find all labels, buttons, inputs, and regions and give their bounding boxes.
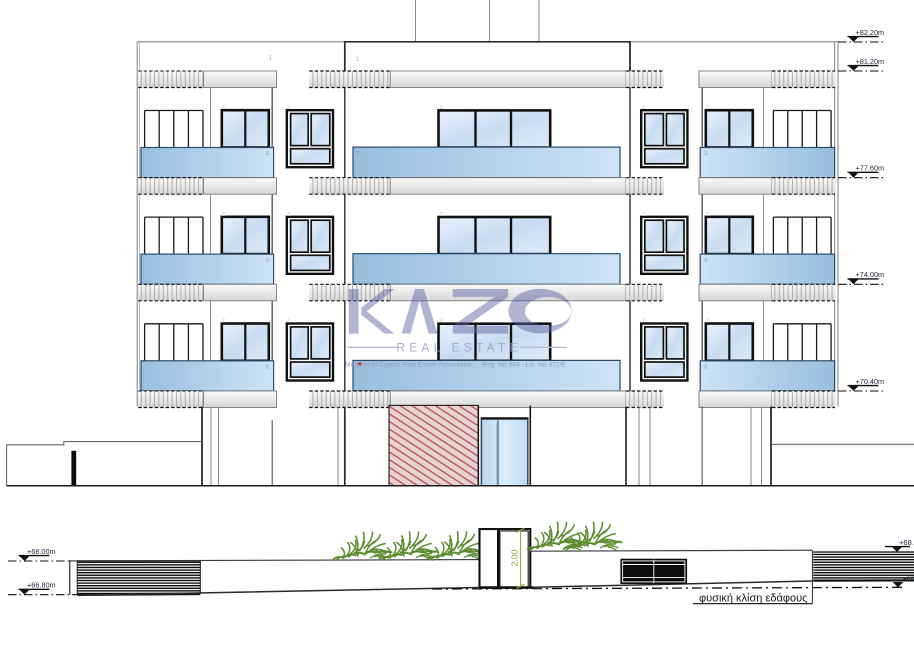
svg-text:2.: 2. — [440, 212, 444, 218]
svg-text:2.: 2. — [642, 319, 646, 325]
svg-text:2.: 2. — [222, 105, 226, 111]
svg-text:3.: 3. — [704, 364, 709, 370]
svg-text:+68.00m: +68.00m — [27, 547, 56, 556]
svg-text:3.: 3. — [704, 151, 709, 157]
svg-text:Member of Cyprus Real Estate A: Member of Cyprus Real Estate Association… — [345, 361, 567, 368]
svg-text:REAL ESTATE: REAL ESTATE — [396, 341, 521, 355]
svg-text:2.: 2. — [440, 319, 444, 325]
svg-text:2.: 2. — [222, 319, 226, 325]
svg-text:2.: 2. — [706, 105, 710, 111]
svg-text:2.: 2. — [706, 212, 710, 218]
svg-text:1.: 1. — [356, 57, 361, 63]
svg-text:2.: 2. — [642, 105, 646, 111]
svg-text:+81.20m: +81.20m — [856, 57, 885, 66]
svg-text:1.: 1. — [356, 258, 361, 264]
svg-text:3.: 3. — [266, 258, 271, 264]
svg-text:+68.0: +68.0 — [899, 538, 914, 547]
svg-text:3.: 3. — [266, 364, 271, 370]
svg-text:2.: 2. — [222, 212, 226, 218]
svg-text:1.: 1. — [356, 151, 361, 157]
svg-text:2.: 2. — [287, 212, 291, 218]
svg-text:2.: 2. — [440, 105, 444, 111]
svg-text:2.: 2. — [287, 319, 291, 325]
svg-text:2.: 2. — [706, 319, 710, 325]
svg-text:+66.80m: +66.80m — [27, 581, 56, 590]
svg-text:1.: 1. — [269, 56, 274, 62]
svg-text:3.: 3. — [704, 258, 709, 264]
svg-text:+70.40m: +70.40m — [856, 377, 885, 386]
svg-text:2.: 2. — [287, 105, 291, 111]
svg-text:+74.00m: +74.00m — [856, 270, 885, 279]
svg-text:+82.20m: +82.20m — [856, 28, 885, 37]
svg-text:φυσική κλίση εδάφους: φυσική κλίση εδάφους — [699, 593, 807, 605]
svg-text:2.: 2. — [642, 212, 646, 218]
svg-text:+66: +66 — [903, 576, 914, 583]
svg-text:2.00: 2.00 — [510, 549, 520, 566]
svg-text:3.: 3. — [266, 151, 271, 157]
svg-text:+77.60m: +77.60m — [856, 164, 885, 173]
